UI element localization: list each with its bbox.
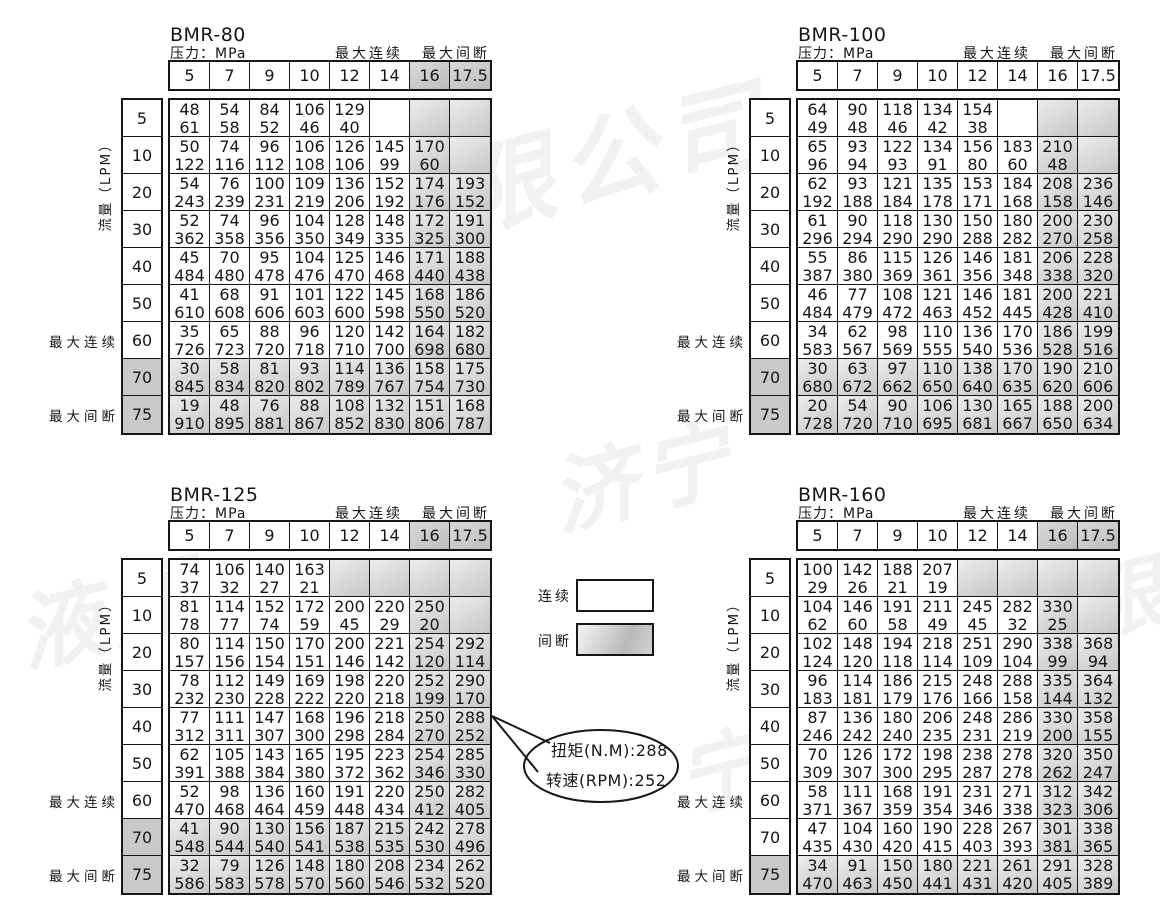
torque-speed-cell: 250412 bbox=[410, 782, 450, 819]
speed-value: 181 bbox=[838, 690, 877, 708]
torque-value: 136 bbox=[838, 709, 877, 727]
torque-speed-cell: 90544 bbox=[210, 819, 250, 856]
torque-speed-cell: 288252 bbox=[450, 708, 490, 745]
torque-speed-cell: 328389 bbox=[1078, 856, 1118, 893]
speed-value: 834 bbox=[210, 378, 249, 396]
torque-value: 150 bbox=[958, 212, 997, 230]
speed-value: 240 bbox=[878, 727, 917, 745]
torque-value: 81 bbox=[250, 360, 289, 378]
torque-speed-cell: 138640 bbox=[958, 359, 998, 396]
speed-value: 158 bbox=[998, 690, 1037, 708]
torque-value: 207 bbox=[918, 561, 957, 579]
torque-value: 96 bbox=[798, 672, 837, 690]
speed-value: 484 bbox=[170, 267, 209, 285]
torque-speed-cell: 80157 bbox=[170, 634, 210, 671]
pressure-header-row: 5791012141617.5 bbox=[168, 520, 492, 551]
torque-value: 196 bbox=[330, 709, 369, 727]
torque-speed-cell: 149228 bbox=[250, 671, 290, 708]
torque-value: 147 bbox=[250, 709, 289, 727]
speed-value: 230 bbox=[210, 690, 249, 708]
speed-value: 45 bbox=[330, 616, 369, 634]
pressure-header-cell: 12 bbox=[330, 522, 370, 549]
torque-speed-cell: 77312 bbox=[170, 708, 210, 745]
torque-speed-cell: 200428 bbox=[1038, 285, 1078, 322]
torque-value: 149 bbox=[250, 672, 289, 690]
speed-value: 470 bbox=[330, 267, 369, 285]
torque-value: 368 bbox=[1078, 635, 1118, 653]
torque-speed-cell: 175730 bbox=[450, 359, 490, 396]
torque-value: 63 bbox=[838, 360, 877, 378]
torque-speed-cell bbox=[370, 100, 410, 137]
speed-value: 550 bbox=[410, 304, 449, 322]
speed-value: 384 bbox=[250, 764, 289, 782]
speed-value: 610 bbox=[170, 304, 209, 322]
torque-value: 136 bbox=[250, 783, 289, 801]
torque-speed-cell: 150154 bbox=[250, 634, 290, 671]
torque-speed-cell: 221431 bbox=[958, 856, 998, 893]
speed-value: 243 bbox=[170, 193, 209, 211]
torque-speed-cell: 198295 bbox=[918, 745, 958, 782]
torque-value: 215 bbox=[370, 820, 409, 838]
torque-speed-cell bbox=[370, 560, 410, 597]
torque-speed-cell: 262520 bbox=[450, 856, 490, 893]
torque-speed-cell: 81820 bbox=[250, 359, 290, 396]
speed-value: 403 bbox=[958, 838, 997, 856]
torque-speed-cell: 200270 bbox=[1038, 211, 1078, 248]
speed-value: 142 bbox=[370, 653, 409, 671]
speed-value: 802 bbox=[290, 378, 329, 396]
torque-speed-cell: 350247 bbox=[1078, 745, 1118, 782]
torque-speed-cell: 20045 bbox=[330, 597, 370, 634]
speed-value: 262 bbox=[1038, 764, 1077, 782]
speed-value: 606 bbox=[1078, 378, 1118, 396]
torque-speed-cell: 130290 bbox=[918, 211, 958, 248]
torque-value: 148 bbox=[838, 635, 877, 653]
torque-speed-cell: 150288 bbox=[958, 211, 998, 248]
torque-speed-cell: 143384 bbox=[250, 745, 290, 782]
speed-value: 144 bbox=[1038, 690, 1077, 708]
torque-value: 165 bbox=[290, 746, 329, 764]
torque-speed-cell: 181445 bbox=[998, 285, 1038, 322]
torque-speed-cell: 251109 bbox=[958, 634, 998, 671]
torque-value: 70 bbox=[210, 249, 249, 267]
torque-value: 87 bbox=[798, 709, 837, 727]
torque-speed-cell: 62192 bbox=[798, 174, 838, 211]
pressure-header-cell: 9 bbox=[878, 62, 918, 89]
speed-value: 296 bbox=[798, 230, 837, 248]
torque-value: 170 bbox=[290, 635, 329, 653]
speed-value: 358 bbox=[210, 230, 249, 248]
torque-speed-cell: 88867 bbox=[290, 396, 330, 433]
torque-speed-cell: 21048 bbox=[1038, 137, 1078, 174]
speed-value: 74 bbox=[250, 616, 289, 634]
speed-value: 62 bbox=[798, 616, 837, 634]
speed-value: 168 bbox=[998, 193, 1037, 211]
speed-value: 881 bbox=[250, 415, 289, 433]
torque-value: 121 bbox=[878, 175, 917, 193]
torque-value: 288 bbox=[450, 709, 490, 727]
torque-speed-cell: 28232 bbox=[998, 597, 1038, 634]
torque-speed-cell: 254346 bbox=[410, 745, 450, 782]
speed-value: 389 bbox=[1078, 875, 1118, 893]
torque-speed-cell: 186520 bbox=[450, 285, 490, 322]
speed-value: 60 bbox=[838, 616, 877, 634]
torque-value: 206 bbox=[918, 709, 957, 727]
torque-speed-cell: 218114 bbox=[918, 634, 958, 671]
speed-value: 114 bbox=[450, 653, 490, 671]
torque-value: 121 bbox=[918, 286, 957, 304]
speed-value: 681 bbox=[958, 415, 997, 433]
speed-value: 287 bbox=[958, 764, 997, 782]
speed-value: 112 bbox=[250, 156, 289, 174]
motor-table-bmr-80: BMR-80 压力：MPa 最大连续 最大间断 5791012141617.5 … bbox=[60, 24, 505, 439]
table-header-labels: 压力：MPa 最大连续 最大间断 bbox=[688, 43, 1133, 60]
flow-label-cell: 50 bbox=[123, 745, 161, 782]
torque-value: 130 bbox=[958, 397, 997, 415]
torque-value: 291 bbox=[1038, 857, 1077, 875]
speed-value: 640 bbox=[958, 378, 997, 396]
speed-value: 46 bbox=[290, 119, 329, 137]
torque-value: 254 bbox=[410, 635, 449, 653]
torque-speed-cell: 104350 bbox=[290, 211, 330, 248]
speed-value: 220 bbox=[330, 690, 369, 708]
speed-value: 428 bbox=[1038, 304, 1077, 322]
torque-value: 271 bbox=[998, 783, 1037, 801]
torque-speed-cell: 13442 bbox=[918, 100, 958, 137]
speed-value: 350 bbox=[290, 230, 329, 248]
torque-speed-cell: 114181 bbox=[838, 671, 878, 708]
speed-value: 540 bbox=[250, 838, 289, 856]
torque-value: 180 bbox=[878, 709, 917, 727]
torque-speed-cell: 330200 bbox=[1038, 708, 1078, 745]
torque-value: 228 bbox=[958, 820, 997, 838]
max-intermittent-side-label: 最大间断 bbox=[677, 405, 747, 425]
speed-value: 420 bbox=[998, 875, 1037, 893]
speed-value: 434 bbox=[370, 801, 409, 819]
torque-value: 93 bbox=[290, 360, 329, 378]
speed-value: 295 bbox=[918, 764, 957, 782]
speed-value: 662 bbox=[878, 378, 917, 396]
torque-value: 122 bbox=[330, 286, 369, 304]
torque-speed-cell: 121184 bbox=[878, 174, 918, 211]
torque-speed-cell: 146356 bbox=[958, 248, 998, 285]
torque-value: 335 bbox=[1038, 672, 1077, 690]
torque-speed-cell: 292114 bbox=[450, 634, 490, 671]
torque-value: 267 bbox=[998, 820, 1037, 838]
speed-value: 109 bbox=[958, 653, 997, 671]
torque-speed-cell: 15274 bbox=[250, 597, 290, 634]
torque-value: 342 bbox=[1078, 783, 1118, 801]
torque-speed-cell: 110650 bbox=[918, 359, 958, 396]
speed-value: 391 bbox=[170, 764, 209, 782]
speed-value: 754 bbox=[410, 378, 449, 396]
flow-label-cell: 5 bbox=[123, 100, 161, 137]
speed-value: 380 bbox=[290, 764, 329, 782]
torque-speed-cell bbox=[1038, 100, 1078, 137]
torque-speed-cell bbox=[410, 560, 450, 597]
speed-value: 183 bbox=[798, 690, 837, 708]
torque-value: 129 bbox=[330, 101, 369, 119]
torque-speed-cell: 16321 bbox=[290, 560, 330, 597]
speed-value: 710 bbox=[878, 415, 917, 433]
speed-value: 479 bbox=[838, 304, 877, 322]
torque-speed-cell: 111367 bbox=[838, 782, 878, 819]
speed-value: 410 bbox=[1078, 304, 1118, 322]
torque-speed-cell: 151806 bbox=[410, 396, 450, 433]
motor-table-bmr-100: BMR-100 压力：MPa 最大连续 最大间断 5791012141617.5… bbox=[688, 24, 1133, 439]
speed-value: 530 bbox=[410, 838, 449, 856]
torque-speed-cell: 70309 bbox=[798, 745, 838, 782]
speed-value: 583 bbox=[210, 875, 249, 893]
torque-speed-cell: 122600 bbox=[330, 285, 370, 322]
torque-speed-cell: 172325 bbox=[410, 211, 450, 248]
torque-speed-cell: 10462 bbox=[798, 597, 838, 634]
torque-speed-cell: 14027 bbox=[250, 560, 290, 597]
torque-value: 105 bbox=[210, 746, 249, 764]
torque-value: 98 bbox=[878, 323, 917, 341]
speed-value: 176 bbox=[918, 690, 957, 708]
flow-label-cell: 40 bbox=[751, 248, 789, 285]
speed-value: 440 bbox=[410, 267, 449, 285]
speed-value: 29 bbox=[370, 616, 409, 634]
torque-value: 248 bbox=[958, 709, 997, 727]
torque-value: 191 bbox=[918, 783, 957, 801]
torque-speed-cell: 169222 bbox=[290, 671, 330, 708]
torque-speed-cell: 32586 bbox=[170, 856, 210, 893]
torque-value: 174 bbox=[410, 175, 449, 193]
torque-value: 290 bbox=[450, 672, 490, 690]
data-grid: 7437106321402716321817811477152741725920… bbox=[168, 558, 492, 895]
pressure-header-cell: 14 bbox=[370, 62, 410, 89]
torque-speed-cell: 36894 bbox=[1078, 634, 1118, 671]
torque-value: 168 bbox=[450, 397, 490, 415]
speed-value: 789 bbox=[330, 378, 369, 396]
torque-speed-cell: 147307 bbox=[250, 708, 290, 745]
torque-speed-cell: 180282 bbox=[998, 211, 1038, 248]
torque-value: 190 bbox=[918, 820, 957, 838]
torque-speed-cell: 14226 bbox=[838, 560, 878, 597]
speed-value: 99 bbox=[370, 156, 409, 174]
speed-value: 720 bbox=[250, 341, 289, 359]
torque-speed-cell: 206338 bbox=[1038, 248, 1078, 285]
flow-label-cell: 60 bbox=[751, 782, 789, 819]
speed-value: 720 bbox=[838, 415, 877, 433]
torque-speed-cell: 160420 bbox=[878, 819, 918, 856]
pressure-header-cell: 7 bbox=[838, 62, 878, 89]
torque-value: 228 bbox=[1078, 249, 1118, 267]
speed-value: 118 bbox=[878, 653, 917, 671]
torque-value: 102 bbox=[798, 635, 837, 653]
torque-value: 221 bbox=[1078, 286, 1118, 304]
speed-value: 154 bbox=[250, 653, 289, 671]
speed-value: 32 bbox=[998, 616, 1037, 634]
torque-speed-cell: 165667 bbox=[998, 396, 1038, 433]
torque-value: 45 bbox=[170, 249, 209, 267]
torque-speed-cell: 125470 bbox=[330, 248, 370, 285]
torque-speed-cell: 48895 bbox=[210, 396, 250, 433]
torque-speed-cell: 126578 bbox=[250, 856, 290, 893]
torque-speed-cell: 210606 bbox=[1078, 359, 1118, 396]
torque-value: 112 bbox=[210, 672, 249, 690]
speed-value: 21 bbox=[878, 579, 917, 597]
speed-value: 146 bbox=[330, 653, 369, 671]
torque-value: 169 bbox=[290, 672, 329, 690]
torque-value: 184 bbox=[998, 175, 1037, 193]
flow-label-cell: 70 bbox=[123, 359, 161, 396]
torque-value: 110 bbox=[918, 323, 957, 341]
speed-value: 48 bbox=[838, 119, 877, 137]
torque-value: 208 bbox=[1038, 175, 1077, 193]
torque-value: 152 bbox=[370, 175, 409, 193]
torque-value: 191 bbox=[878, 598, 917, 616]
speed-value: 252 bbox=[450, 727, 490, 745]
speed-value: 349 bbox=[330, 230, 369, 248]
torque-value: 180 bbox=[918, 857, 957, 875]
torque-speed-cell: 158754 bbox=[410, 359, 450, 396]
speed-value: 232 bbox=[170, 690, 209, 708]
torque-speed-cell: 301381 bbox=[1038, 819, 1078, 856]
torque-value: 52 bbox=[170, 212, 209, 230]
flow-label-column: 51020304050607075 bbox=[749, 558, 791, 895]
torque-speed-cell: 170151 bbox=[290, 634, 330, 671]
speed-value: 282 bbox=[998, 230, 1037, 248]
pressure-header-cell: 17.5 bbox=[450, 62, 490, 89]
torque-speed-cell: 142700 bbox=[370, 322, 410, 359]
torque-speed-cell: 128349 bbox=[330, 211, 370, 248]
speed-value: 192 bbox=[798, 193, 837, 211]
speed-value: 222 bbox=[290, 690, 329, 708]
flow-label-cell: 20 bbox=[751, 174, 789, 211]
torque-value: 188 bbox=[1038, 397, 1077, 415]
speed-value: 387 bbox=[798, 267, 837, 285]
torque-speed-cell: 271338 bbox=[998, 782, 1038, 819]
torque-value: 250 bbox=[410, 783, 449, 801]
torque-speed-cell: 252199 bbox=[410, 671, 450, 708]
torque-value: 70 bbox=[798, 746, 837, 764]
torque-value: 364 bbox=[1078, 672, 1118, 690]
torque-value: 146 bbox=[958, 249, 997, 267]
torque-speed-cell bbox=[1078, 100, 1118, 137]
pressure-header-cell: 7 bbox=[210, 62, 250, 89]
torque-value: 55 bbox=[798, 249, 837, 267]
torque-speed-cell: 111311 bbox=[210, 708, 250, 745]
speed-value: 338 bbox=[998, 801, 1037, 819]
flow-label-cell: 5 bbox=[751, 560, 789, 597]
torque-speed-cell: 191448 bbox=[330, 782, 370, 819]
torque-value: 223 bbox=[370, 746, 409, 764]
torque-speed-cell: 46484 bbox=[798, 285, 838, 322]
pressure-header-cell: 17.5 bbox=[450, 522, 490, 549]
speed-value: 61 bbox=[170, 119, 209, 137]
max-intermittent-side-label: 最大间断 bbox=[49, 405, 119, 425]
torque-speed-cell: 286219 bbox=[998, 708, 1038, 745]
speed-value: 124 bbox=[798, 653, 837, 671]
speed-value: 77 bbox=[210, 616, 249, 634]
torque-speed-cell: 100231 bbox=[250, 174, 290, 211]
torque-value: 91 bbox=[838, 857, 877, 875]
flow-label-cell: 20 bbox=[123, 634, 161, 671]
torque-speed-cell: 136540 bbox=[958, 322, 998, 359]
flow-axis-label: 流量（LPM） bbox=[94, 569, 114, 719]
speed-value: 188 bbox=[838, 193, 877, 211]
torque-speed-cell: 112230 bbox=[210, 671, 250, 708]
torque-value: 62 bbox=[798, 175, 837, 193]
speed-value: 532 bbox=[410, 875, 449, 893]
torque-value: 62 bbox=[838, 323, 877, 341]
torque-speed-cell: 14660 bbox=[838, 597, 878, 634]
speed-value: 300 bbox=[450, 230, 490, 248]
torque-value: 350 bbox=[1078, 746, 1118, 764]
torque-value: 168 bbox=[290, 709, 329, 727]
speed-value: 700 bbox=[370, 341, 409, 359]
speed-value: 667 bbox=[998, 415, 1037, 433]
torque-value: 41 bbox=[170, 820, 209, 838]
torque-value: 187 bbox=[330, 820, 369, 838]
speed-value: 78 bbox=[170, 616, 209, 634]
torque-value: 221 bbox=[958, 857, 997, 875]
speed-value: 178 bbox=[918, 193, 957, 211]
torque-value: 114 bbox=[210, 598, 249, 616]
pressure-header-cell: 5 bbox=[170, 62, 210, 89]
torque-speed-cell: 181348 bbox=[998, 248, 1038, 285]
torque-value: 221 bbox=[370, 635, 409, 653]
torque-speed-cell: 21149 bbox=[918, 597, 958, 634]
torque-speed-cell: 90294 bbox=[838, 211, 878, 248]
torque-value: 41 bbox=[170, 286, 209, 304]
speed-value: 538 bbox=[330, 838, 369, 856]
torque-value: 74 bbox=[210, 138, 249, 156]
torque-speed-cell: 95478 bbox=[250, 248, 290, 285]
speed-value: 548 bbox=[170, 838, 209, 856]
speed-value: 445 bbox=[998, 304, 1037, 322]
torque-value: 146 bbox=[370, 249, 409, 267]
speed-value: 290 bbox=[918, 230, 957, 248]
torque-value: 30 bbox=[798, 360, 837, 378]
pressure-header-cell: 10 bbox=[918, 522, 958, 549]
legend-continuous-label: 连续 bbox=[538, 586, 572, 606]
torque-value: 220 bbox=[370, 783, 409, 801]
speed-value: 307 bbox=[838, 764, 877, 782]
torque-value: 199 bbox=[1078, 323, 1118, 341]
speed-value: 480 bbox=[210, 267, 249, 285]
torque-speed-cell: 126307 bbox=[838, 745, 878, 782]
pressure-header-cell: 5 bbox=[170, 522, 210, 549]
torque-speed-cell bbox=[1078, 597, 1118, 634]
max-continuous-side-label: 最大连续 bbox=[677, 331, 747, 351]
torque-speed-cell: 93802 bbox=[290, 359, 330, 396]
torque-speed-cell: 221142 bbox=[370, 634, 410, 671]
pressure-header-cell: 16 bbox=[410, 522, 450, 549]
torque-value: 93 bbox=[838, 138, 877, 156]
torque-value: 168 bbox=[410, 286, 449, 304]
speed-value: 132 bbox=[1078, 690, 1118, 708]
speed-value: 520 bbox=[450, 304, 490, 322]
pressure-header-cell: 14 bbox=[998, 62, 1038, 89]
speed-value: 231 bbox=[250, 193, 289, 211]
speed-value: 354 bbox=[918, 801, 957, 819]
torque-value: 220 bbox=[370, 598, 409, 616]
torque-speed-cell: 165380 bbox=[290, 745, 330, 782]
torque-value: 54 bbox=[170, 175, 209, 193]
torque-value: 126 bbox=[918, 249, 957, 267]
torque-speed-cell: 126106 bbox=[330, 137, 370, 174]
torque-speed-cell: 62567 bbox=[838, 322, 878, 359]
torque-speed-cell bbox=[410, 100, 450, 137]
max-continuous-side-label: 最大连续 bbox=[49, 331, 119, 351]
torque-value: 181 bbox=[998, 286, 1037, 304]
pressure-header-cell: 12 bbox=[958, 62, 998, 89]
torque-value: 251 bbox=[958, 635, 997, 653]
